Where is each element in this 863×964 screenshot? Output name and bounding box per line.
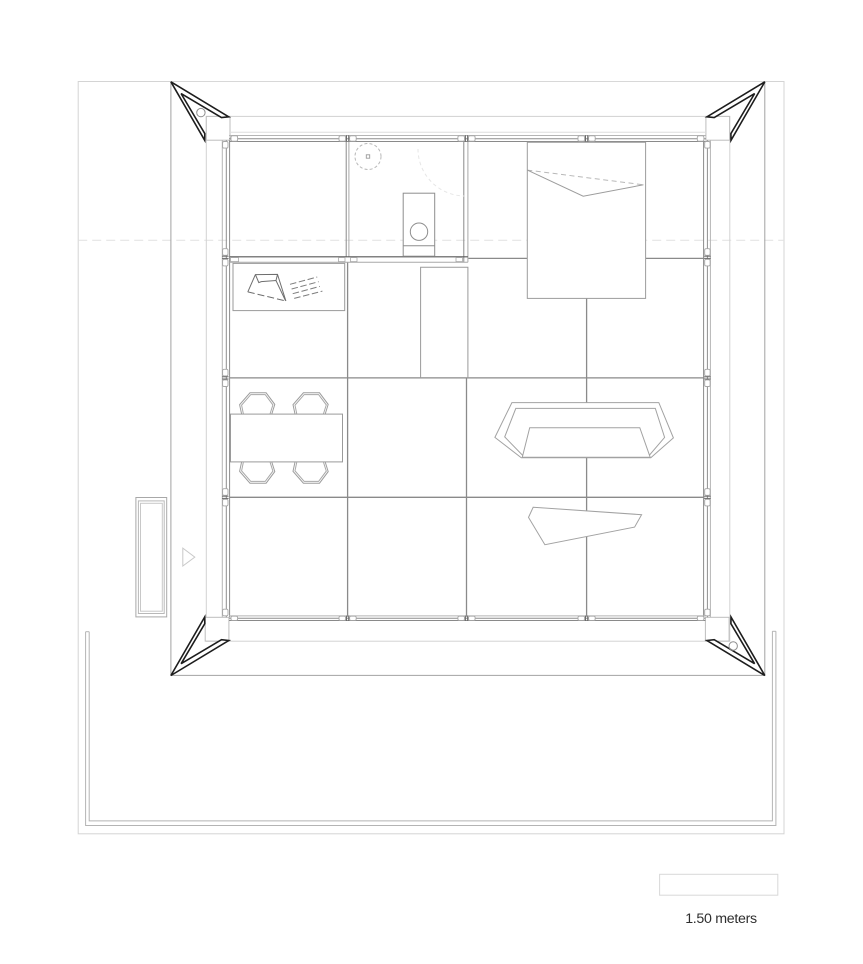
svg-text:1.50 meters: 1.50 meters: [685, 911, 757, 927]
